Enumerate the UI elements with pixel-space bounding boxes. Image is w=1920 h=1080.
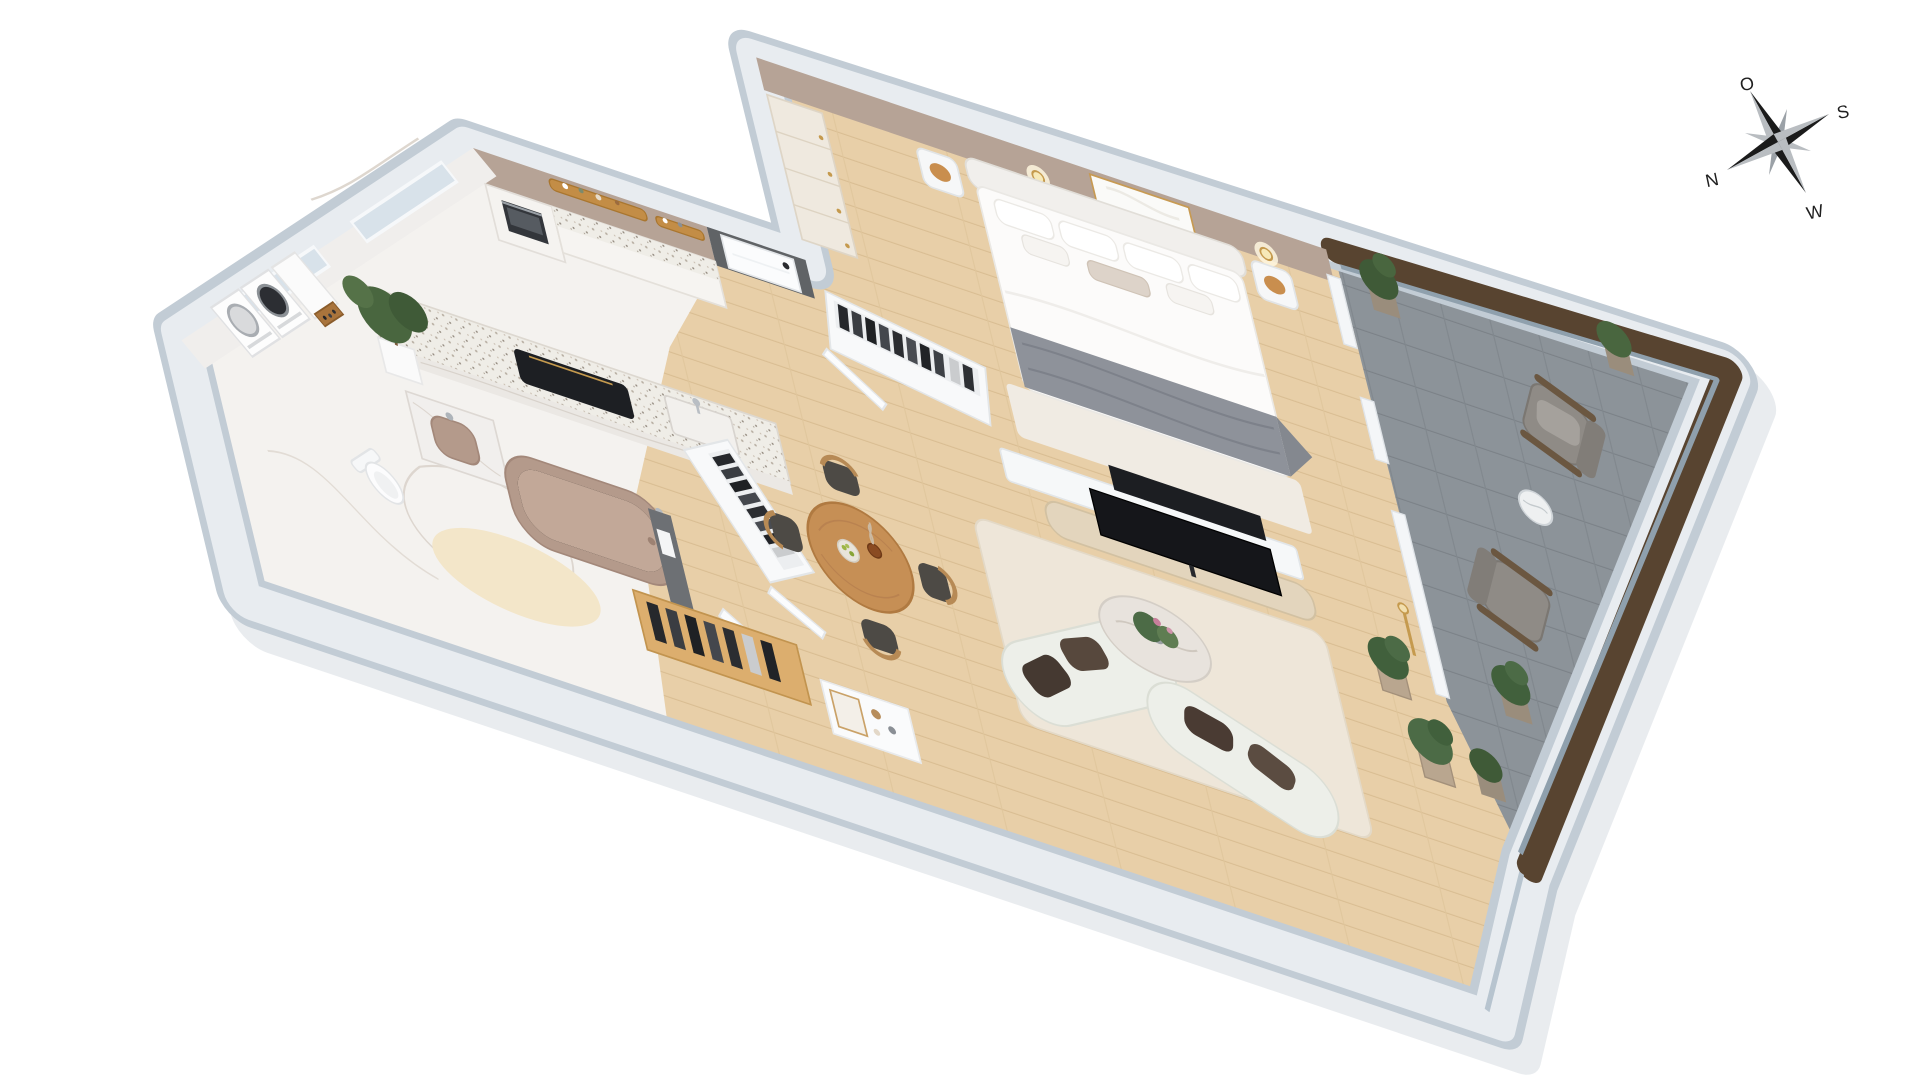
compass-label-east: O bbox=[1738, 73, 1756, 95]
compass-label-north: N bbox=[1704, 169, 1721, 191]
compass-rose: O S N W bbox=[1704, 73, 1851, 224]
compass-label-west: W bbox=[1805, 200, 1826, 223]
apartment-3d-floorplan: O S N W bbox=[0, 0, 1920, 1080]
compass-label-south: S bbox=[1835, 101, 1851, 123]
floorplan-render-page: O S N W bbox=[0, 0, 1920, 1080]
